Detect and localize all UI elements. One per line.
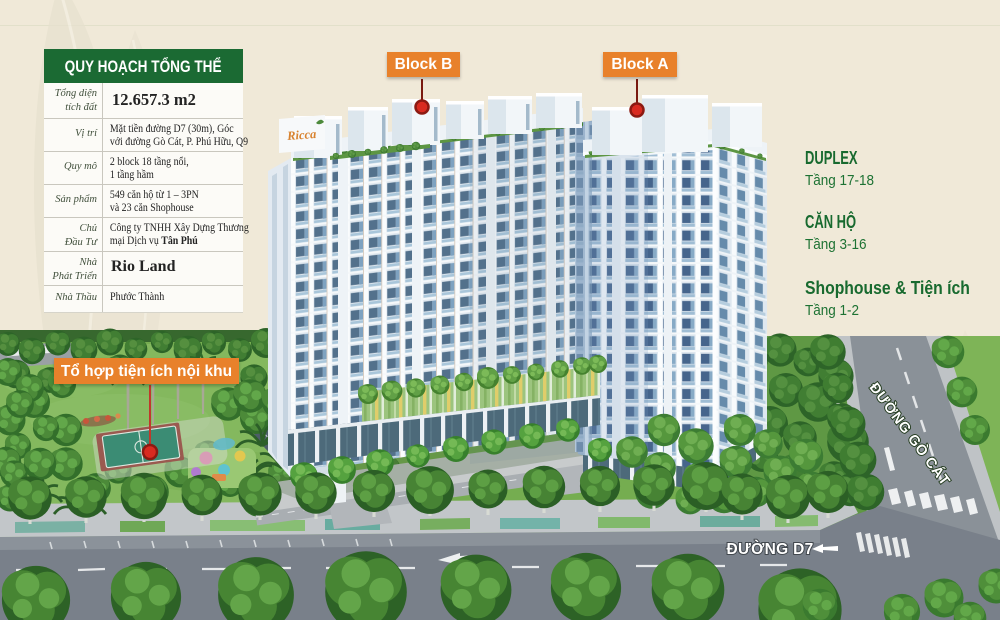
svg-text:ĐƯỜNG D7: ĐƯỜNG D7 (726, 540, 813, 558)
svg-text:Ricca: Ricca (286, 127, 317, 143)
